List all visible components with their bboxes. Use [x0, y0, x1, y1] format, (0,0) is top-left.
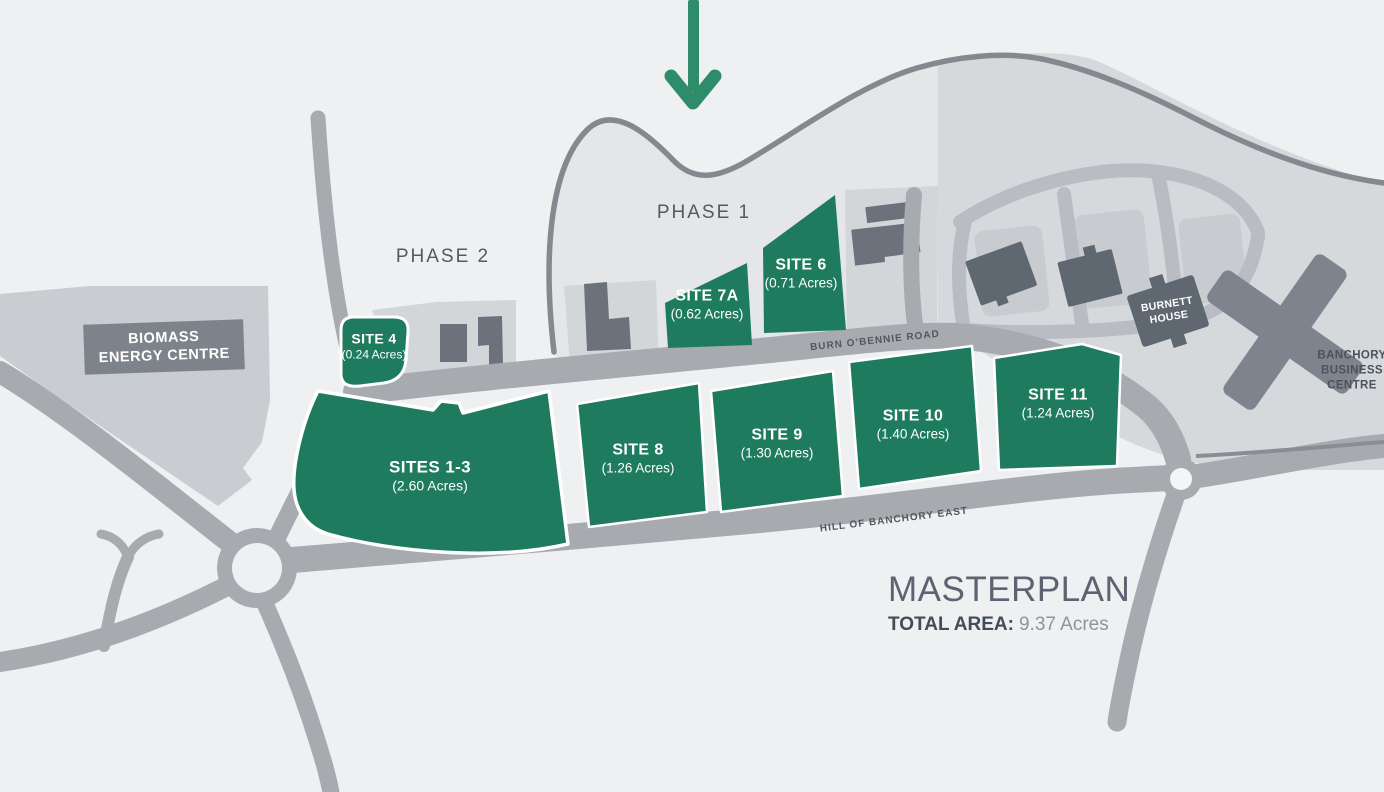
site-area: (2.60 Acres) — [389, 478, 471, 495]
site-4-label: SITE 4 (0.24 Acres) — [342, 331, 407, 362]
phase-2-label: PHASE 2 — [396, 246, 490, 268]
site-area: (0.62 Acres) — [671, 306, 744, 322]
phase-1-label: PHASE 1 — [657, 202, 751, 224]
site-name: SITES 1-3 — [389, 458, 471, 478]
site-name: SITE 9 — [741, 427, 814, 446]
site-name: SITE 4 — [342, 331, 407, 348]
site-name: SITE 10 — [877, 408, 950, 427]
site-name: SITE 7A — [671, 288, 744, 307]
banchory-line2: BUSINESS — [1317, 364, 1384, 379]
sites-1-3-label: SITES 1-3 (2.60 Acres) — [389, 458, 471, 495]
site-10-label: SITE 10 (1.40 Acres) — [877, 408, 950, 443]
biomass-energy-centre-label: BIOMASS ENERGY CENTRE — [83, 319, 245, 375]
banchory-line1: BANCHORY — [1317, 349, 1384, 364]
site-7a-label: SITE 7A (0.62 Acres) — [671, 288, 744, 323]
hill-of-banchory-east-road-label: HILL OF BANCHORY EAST — [819, 505, 968, 534]
site-9-label: SITE 9 (1.30 Acres) — [741, 427, 814, 462]
site-area: (1.24 Acres) — [1022, 405, 1095, 421]
masterplan-map: PHASE 1 PHASE 2 BIOMASS ENERGY CENTRE SI… — [0, 0, 1384, 792]
burn-o-bennie-road-label: BURN O’BENNIE ROAD — [810, 329, 941, 354]
site-area: (0.24 Acres) — [342, 347, 407, 361]
site-name: SITE 8 — [602, 442, 675, 461]
site-11-label: SITE 11 (1.24 Acres) — [1022, 387, 1095, 422]
site-8-label: SITE 8 (1.26 Acres) — [602, 442, 675, 477]
site-area: (1.30 Acres) — [741, 445, 814, 461]
site-name: SITE 11 — [1022, 387, 1095, 406]
banchory-line3: CENTRE — [1317, 378, 1384, 393]
banchory-business-centre-label: BANCHORY BUSINESS CENTRE — [1317, 349, 1384, 394]
total-area-label: TOTAL AREA: — [888, 614, 1014, 635]
label-overlay: PHASE 1 PHASE 2 BIOMASS ENERGY CENTRE SI… — [0, 0, 1384, 792]
legend: MASTERPLAN TOTAL AREA:9.37 Acres — [888, 572, 1130, 636]
biomass-line2: ENERGY CENTRE — [98, 345, 230, 368]
site-area: (1.26 Acres) — [602, 460, 675, 476]
legend-title: MASTERPLAN — [888, 572, 1130, 609]
burnett-house-label: BURNETT HOUSE — [1140, 294, 1196, 327]
total-area-value: 9.37 Acres — [1019, 614, 1109, 635]
site-area: (1.40 Acres) — [877, 426, 950, 442]
legend-total-area: TOTAL AREA:9.37 Acres — [888, 614, 1130, 636]
site-6-label: SITE 6 (0.71 Acres) — [765, 257, 838, 292]
site-area: (0.71 Acres) — [765, 275, 838, 291]
site-name: SITE 6 — [765, 257, 838, 276]
